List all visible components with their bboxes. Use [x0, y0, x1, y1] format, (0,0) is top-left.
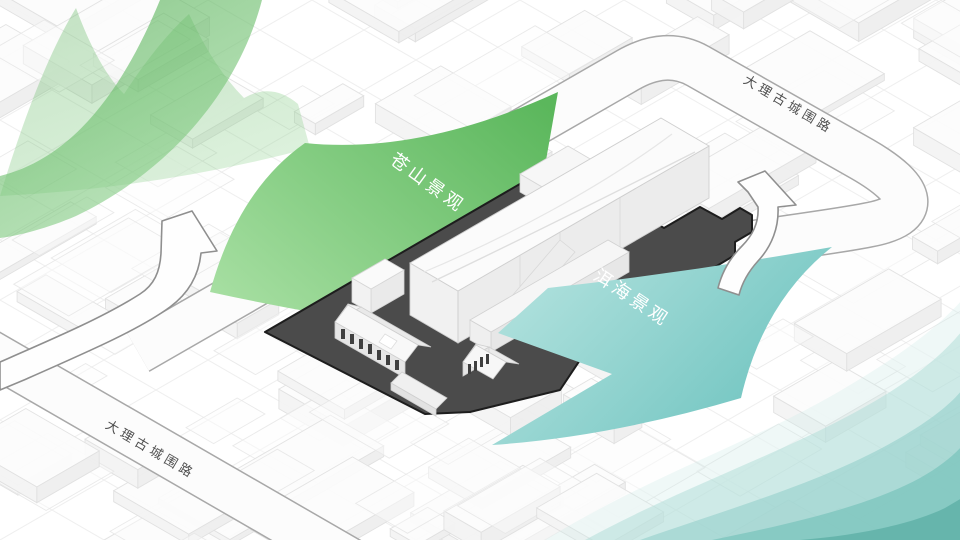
- diagram-canvas: 大理古城围路 大理古城围路 苍山景观 洱海景观: [0, 0, 960, 540]
- site-analysis-diagram: 大理古城围路 大理古城围路 苍山景观 洱海景观: [0, 0, 960, 540]
